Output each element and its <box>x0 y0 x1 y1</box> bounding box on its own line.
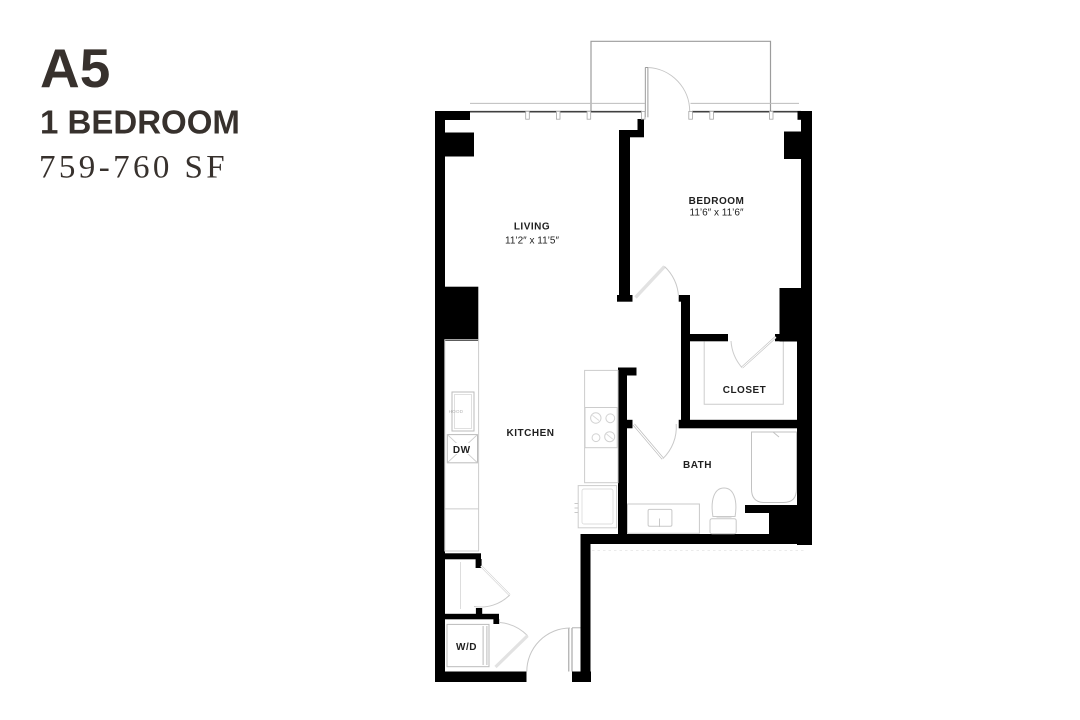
svg-text:A5: A5 <box>40 37 110 99</box>
svg-text:11’6″ x 11’6″: 11’6″ x 11’6″ <box>690 208 744 219</box>
svg-text:759-760 SF: 759-760 SF <box>39 150 228 186</box>
svg-text:DW: DW <box>453 445 471 456</box>
svg-text:LIVING: LIVING <box>514 222 550 233</box>
svg-text:W/D: W/D <box>456 642 477 653</box>
svg-text:BEDROOM: BEDROOM <box>689 196 745 207</box>
svg-text:CLOSET: CLOSET <box>723 385 767 396</box>
svg-text:BATH: BATH <box>683 460 712 471</box>
svg-text:KITCHEN: KITCHEN <box>507 428 555 439</box>
svg-text:11’2″ x 11’5″: 11’2″ x 11’5″ <box>505 235 559 246</box>
svg-text:1 BEDROOM: 1 BEDROOM <box>40 104 240 141</box>
svg-text:HOOD: HOOD <box>449 409 464 414</box>
